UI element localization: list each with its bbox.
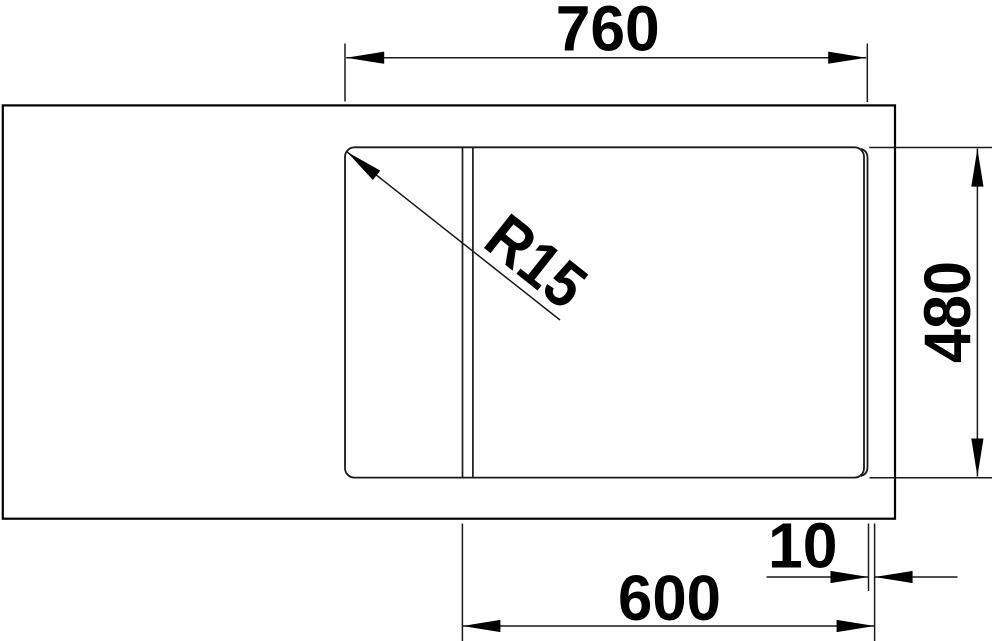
svg-text:10: 10 [768,510,838,582]
svg-text:600: 600 [618,562,721,634]
svg-text:760: 760 [556,0,660,65]
svg-text:480: 480 [910,261,984,363]
